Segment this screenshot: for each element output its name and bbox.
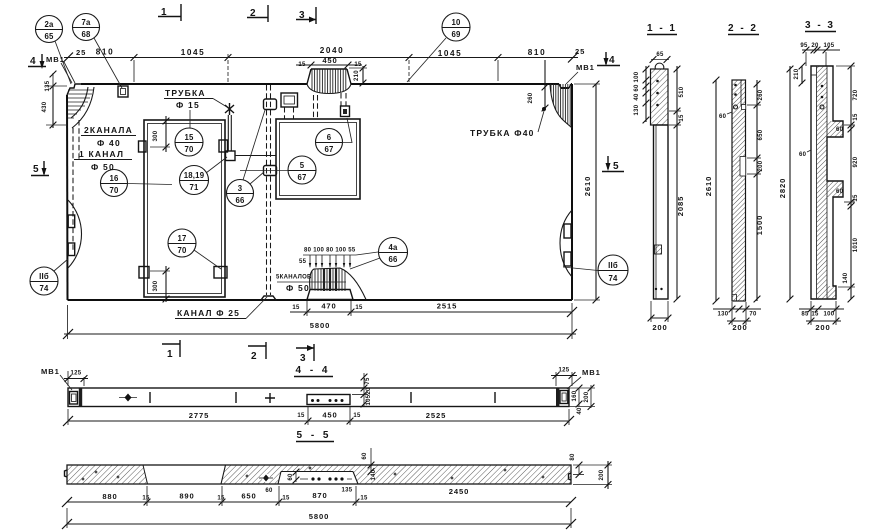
svg-text:870: 870 xyxy=(312,491,327,500)
svg-text:IIб: IIб xyxy=(39,272,49,281)
svg-text:16: 16 xyxy=(109,174,119,183)
svg-text:15: 15 xyxy=(297,413,305,419)
svg-text:5: 5 xyxy=(33,164,39,175)
svg-text:15: 15 xyxy=(354,62,362,68)
svg-text:140: 140 xyxy=(843,272,849,283)
svg-text:МВ1: МВ1 xyxy=(41,367,60,376)
svg-text:МВ1: МВ1 xyxy=(46,55,65,64)
svg-text:3: 3 xyxy=(238,184,243,193)
svg-text:71: 71 xyxy=(189,183,199,192)
svg-text:2775: 2775 xyxy=(189,411,210,420)
svg-text:920: 920 xyxy=(853,156,859,167)
svg-text:200: 200 xyxy=(584,391,590,402)
svg-text:2450: 2450 xyxy=(449,487,470,496)
svg-text:890: 890 xyxy=(179,492,194,501)
svg-text:1045: 1045 xyxy=(438,49,463,58)
svg-text:5: 5 xyxy=(300,161,305,170)
svg-text:15: 15 xyxy=(217,496,225,502)
svg-text:Ф 50: Ф 50 xyxy=(286,283,310,293)
svg-text:2 - 2: 2 - 2 xyxy=(728,23,758,34)
svg-text:1045: 1045 xyxy=(181,48,206,57)
svg-text:74: 74 xyxy=(39,284,49,293)
svg-text:67: 67 xyxy=(297,173,306,182)
svg-text:60: 60 xyxy=(836,189,844,195)
svg-text:260: 260 xyxy=(758,89,764,100)
svg-text:1 - 1: 1 - 1 xyxy=(647,23,677,34)
svg-text:720: 720 xyxy=(853,89,859,100)
svg-text:140: 140 xyxy=(371,469,377,480)
svg-text:80 100 80 100 55: 80 100 80 100 55 xyxy=(304,248,356,254)
svg-text:60: 60 xyxy=(719,114,727,120)
svg-text:Ф 15: Ф 15 xyxy=(176,100,200,110)
svg-text:70: 70 xyxy=(109,186,119,195)
svg-text:470: 470 xyxy=(321,302,336,311)
svg-text:4a: 4a xyxy=(388,243,398,252)
svg-text:5800: 5800 xyxy=(310,321,331,330)
svg-text:210: 210 xyxy=(354,70,360,81)
svg-text:15: 15 xyxy=(853,194,859,202)
svg-text:450: 450 xyxy=(322,411,337,420)
svg-text:15: 15 xyxy=(292,305,300,311)
svg-text:125: 125 xyxy=(559,368,570,374)
svg-text:15: 15 xyxy=(853,113,859,121)
svg-text:67: 67 xyxy=(324,145,333,154)
svg-text:1500: 1500 xyxy=(755,215,764,236)
svg-text:75: 75 xyxy=(365,377,371,385)
svg-text:2820: 2820 xyxy=(778,178,787,199)
svg-text:300: 300 xyxy=(153,130,159,141)
svg-text:5КАНАЛОВ: 5КАНАЛОВ xyxy=(276,275,312,281)
svg-text:10: 10 xyxy=(451,18,461,27)
svg-text:60: 60 xyxy=(362,452,368,460)
svg-text:60: 60 xyxy=(799,152,807,158)
svg-text:1: 1 xyxy=(167,349,173,360)
svg-text:2085: 2085 xyxy=(676,196,685,217)
svg-text:105: 105 xyxy=(366,394,372,405)
svg-text:КАНАЛ Ф 25: КАНАЛ Ф 25 xyxy=(177,308,240,318)
svg-text:105: 105 xyxy=(824,43,835,49)
svg-text:2525: 2525 xyxy=(426,411,447,420)
svg-text:18,19: 18,19 xyxy=(184,171,205,180)
svg-text:15: 15 xyxy=(679,114,685,122)
svg-text:IIб: IIб xyxy=(608,261,618,270)
svg-text:65: 65 xyxy=(44,32,54,41)
svg-text:300: 300 xyxy=(153,280,159,291)
svg-text:85: 85 xyxy=(801,312,809,318)
svg-text:17: 17 xyxy=(177,234,186,243)
svg-text:810: 810 xyxy=(528,48,546,57)
svg-text:200: 200 xyxy=(815,323,830,332)
svg-text:70: 70 xyxy=(749,312,757,318)
svg-text:200: 200 xyxy=(732,323,747,332)
svg-text:130: 130 xyxy=(634,104,640,115)
svg-text:4: 4 xyxy=(30,56,36,67)
svg-text:69: 69 xyxy=(451,30,461,39)
svg-text:20: 20 xyxy=(811,43,819,49)
svg-text:810: 810 xyxy=(96,48,114,57)
svg-text:МВ1: МВ1 xyxy=(582,368,601,377)
svg-text:2a: 2a xyxy=(44,20,54,29)
svg-text:1 КАНАЛ: 1 КАНАЛ xyxy=(79,149,124,159)
svg-text:210: 210 xyxy=(794,68,800,79)
svg-text:60: 60 xyxy=(836,127,844,133)
svg-text:25: 25 xyxy=(575,47,585,56)
svg-text:5 - 5: 5 - 5 xyxy=(296,430,331,441)
svg-text:6: 6 xyxy=(327,133,332,142)
svg-text:430: 430 xyxy=(42,101,48,112)
svg-text:200: 200 xyxy=(758,160,764,171)
svg-text:2610: 2610 xyxy=(704,176,713,197)
svg-text:Ф 50: Ф 50 xyxy=(91,162,115,172)
svg-text:70: 70 xyxy=(184,145,194,154)
svg-text:95: 95 xyxy=(800,43,808,49)
svg-text:65: 65 xyxy=(656,52,664,58)
svg-text:7a: 7a xyxy=(81,18,91,27)
svg-text:200: 200 xyxy=(599,469,605,480)
svg-text:3: 3 xyxy=(300,353,306,364)
svg-text:15: 15 xyxy=(142,496,150,502)
svg-text:2: 2 xyxy=(251,351,257,362)
svg-text:200: 200 xyxy=(652,323,667,332)
svg-text:3 - 3: 3 - 3 xyxy=(805,20,835,31)
svg-text:40: 40 xyxy=(634,93,640,101)
svg-text:650: 650 xyxy=(758,129,764,140)
svg-text:60: 60 xyxy=(265,488,273,494)
svg-text:1010: 1010 xyxy=(853,237,859,252)
svg-text:5800: 5800 xyxy=(309,512,330,521)
svg-text:2040: 2040 xyxy=(320,46,345,55)
svg-text:100: 100 xyxy=(824,312,835,318)
svg-text:135: 135 xyxy=(342,488,353,494)
svg-text:160: 160 xyxy=(572,390,578,401)
svg-text:450: 450 xyxy=(322,56,337,65)
svg-text:15: 15 xyxy=(355,305,363,311)
svg-text:25: 25 xyxy=(76,48,86,57)
svg-text:2610: 2610 xyxy=(583,176,592,197)
svg-text:650: 650 xyxy=(241,492,256,501)
svg-text:15: 15 xyxy=(298,62,306,68)
svg-text:15: 15 xyxy=(353,413,361,419)
svg-text:100: 100 xyxy=(634,71,640,82)
svg-text:40: 40 xyxy=(577,407,583,415)
svg-text:130: 130 xyxy=(718,312,729,318)
svg-text:60: 60 xyxy=(634,84,640,92)
svg-text:4 - 4: 4 - 4 xyxy=(295,365,330,376)
svg-text:66: 66 xyxy=(388,255,398,264)
svg-text:70: 70 xyxy=(177,246,187,255)
svg-text:15: 15 xyxy=(282,496,290,502)
svg-text:66: 66 xyxy=(235,196,245,205)
svg-text:5: 5 xyxy=(613,161,619,172)
svg-text:74: 74 xyxy=(608,274,618,283)
svg-text:2515: 2515 xyxy=(437,302,458,311)
svg-text:15: 15 xyxy=(360,496,368,502)
svg-text:880: 880 xyxy=(102,492,117,501)
svg-text:Ф 40: Ф 40 xyxy=(97,138,121,148)
svg-text:МВ1: МВ1 xyxy=(576,63,595,72)
svg-text:55: 55 xyxy=(299,259,307,265)
svg-text:510: 510 xyxy=(679,86,685,97)
svg-text:20: 20 xyxy=(366,387,372,395)
svg-text:4: 4 xyxy=(609,55,615,66)
svg-text:15: 15 xyxy=(184,133,194,142)
svg-text:15: 15 xyxy=(811,312,819,318)
svg-text:125: 125 xyxy=(71,371,82,377)
svg-text:68: 68 xyxy=(81,30,91,39)
svg-text:ТРУБКА Ф40: ТРУБКА Ф40 xyxy=(470,128,535,138)
svg-text:80: 80 xyxy=(570,453,576,461)
svg-text:260: 260 xyxy=(528,92,534,103)
svg-text:ТРУБКА: ТРУБКА xyxy=(165,88,206,98)
svg-text:2КАНАЛА: 2КАНАЛА xyxy=(84,125,133,135)
